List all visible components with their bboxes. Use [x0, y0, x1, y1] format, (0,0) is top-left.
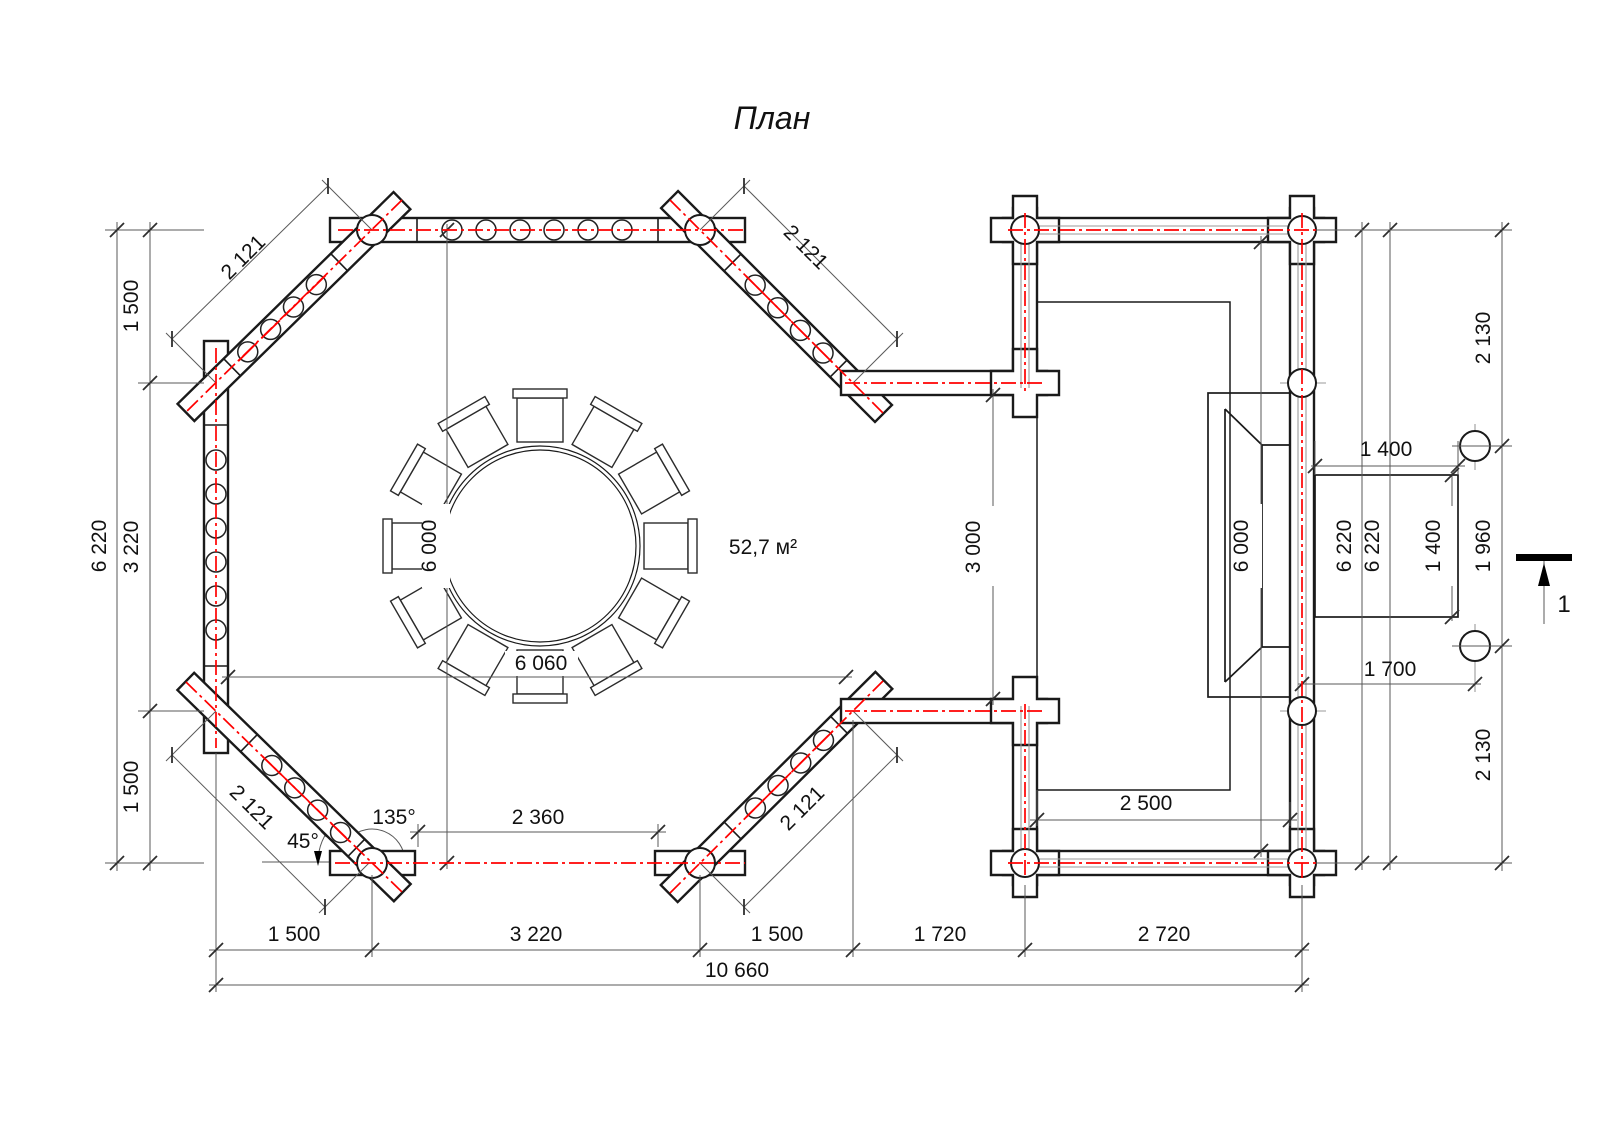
dim-label-hall-width: 6 060 [515, 652, 568, 675]
section-cut-bar [1516, 554, 1572, 561]
dim-label-right-opening: 3 000 [962, 521, 985, 574]
section-arrow [1538, 563, 1550, 586]
section-label: 1 [1557, 591, 1570, 618]
dim-label-entrance: 2 360 [512, 806, 565, 829]
terrace-deck-outline [1037, 302, 1230, 790]
dim-label-landing-width: 1 400 [1360, 438, 1413, 461]
dim-label-hall-height: 6 000 [418, 520, 441, 573]
section-mark: 1 [1516, 554, 1572, 624]
chair [513, 389, 567, 442]
dim-label-right-3: 2 130 [1472, 729, 1495, 782]
dim-label-terrace-clear: 2 500 [1120, 792, 1173, 815]
dim-label-right-1: 2 130 [1472, 312, 1495, 365]
dim-label-tl-diagonal: 2 121 [217, 231, 270, 284]
angle-label-135: 135° [372, 806, 415, 829]
dim-label-bottom-5: 2 720 [1138, 923, 1191, 946]
drawing-title: План [734, 100, 811, 136]
dim-label-right-2: 1 960 [1472, 520, 1495, 573]
dim-label-bottom-2: 3 220 [510, 923, 563, 946]
dim-label-bottom-total: 10 660 [705, 959, 769, 982]
dim-label-left-lower: 1 500 [120, 761, 143, 814]
dim-label-post-offset: 1 700 [1364, 658, 1417, 681]
dining-table [440, 446, 640, 646]
dim-label-right-total-b: 6 220 [1361, 520, 1384, 573]
angle-label-45: 45° [287, 830, 319, 853]
octagon-walls [177, 191, 1047, 902]
dim-label-bottom-3: 1 500 [751, 923, 804, 946]
dim-label-bottom-4: 1 720 [914, 923, 967, 946]
dim-label-left-upper: 1 500 [120, 280, 143, 333]
dim-label-right-total-a: 6 220 [1333, 520, 1356, 573]
dim-label-bottom-1: 1 500 [268, 923, 321, 946]
dim-label-terrace-height: 6 000 [1230, 520, 1253, 573]
area-label: 52,7 м² [729, 536, 797, 559]
dim-label-bl-diagonal: 2 121 [225, 781, 278, 834]
dim-label-left-middle: 3 220 [120, 521, 143, 574]
dim-label-landing-depth: 1 400 [1422, 520, 1445, 573]
floor-plan-drawing: План 2 121 2 121 2 121 2 121 6 220 1 500… [0, 0, 1600, 1131]
dim-label-left-total: 6 220 [88, 520, 111, 573]
floor-plan-page: План 2 121 2 121 2 121 2 121 6 220 1 500… [0, 0, 1600, 1131]
